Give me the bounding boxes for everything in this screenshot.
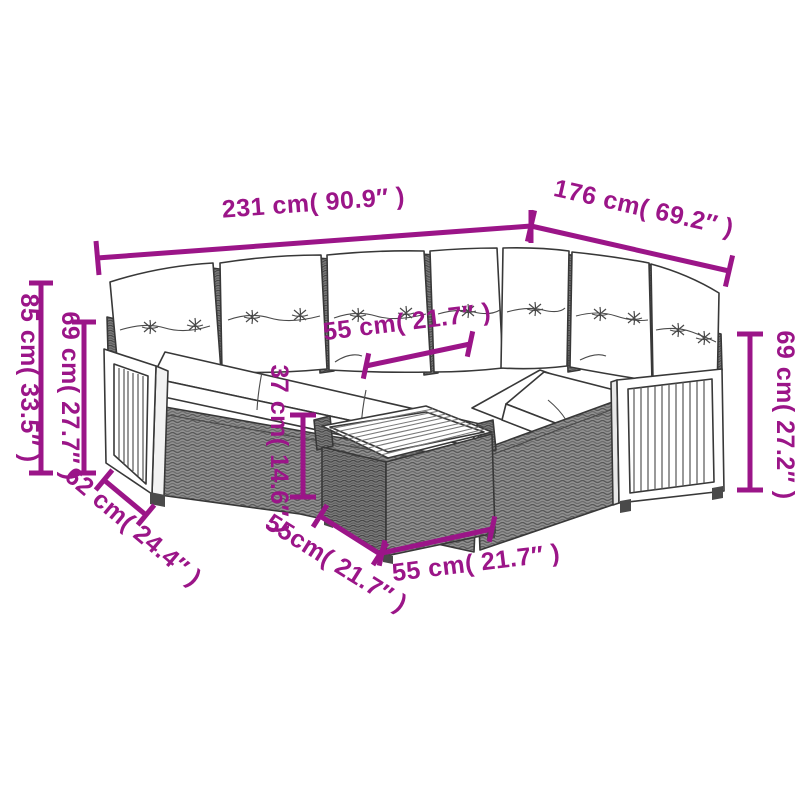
dimension-label-37cm: 37 cm( 14.6″ ): [265, 364, 293, 533]
dimension-label-176cm: 176 cm( 69.2″ ): [551, 174, 736, 242]
back-cushion: [220, 255, 327, 373]
sofa-set-diagram: 231 cm( 90.9″ ) 176 cm( 69.2″ ) 85 cm( 3…: [0, 0, 800, 800]
dimension-label-85cm: 85 cm( 33.5″ ): [15, 293, 43, 462]
product-dimension-diagram: 231 cm( 90.9″ ) 176 cm( 69.2″ ) 85 cm( 3…: [0, 0, 800, 800]
right-arm-panel: [611, 369, 724, 513]
arm-foot: [620, 499, 631, 513]
dimension-label-69cm-left: 69 cm( 27.7″ ): [56, 311, 84, 480]
dimension-back-height: 85 cm( 33.5″ ): [15, 283, 53, 473]
back-cushion: [570, 252, 652, 381]
dimension-label-231cm: 231 cm( 90.9″ ): [221, 182, 406, 223]
left-arm-panel: [104, 349, 168, 507]
arm-foot: [712, 486, 723, 500]
dimension-arm-height-right: 69 cm( 27.2″ ): [737, 330, 799, 499]
dimension-label-69cm-right: 69 cm( 27.2″ ): [771, 330, 799, 499]
dimension-arm-height-left: 69 cm( 27.7″ ): [56, 311, 96, 480]
